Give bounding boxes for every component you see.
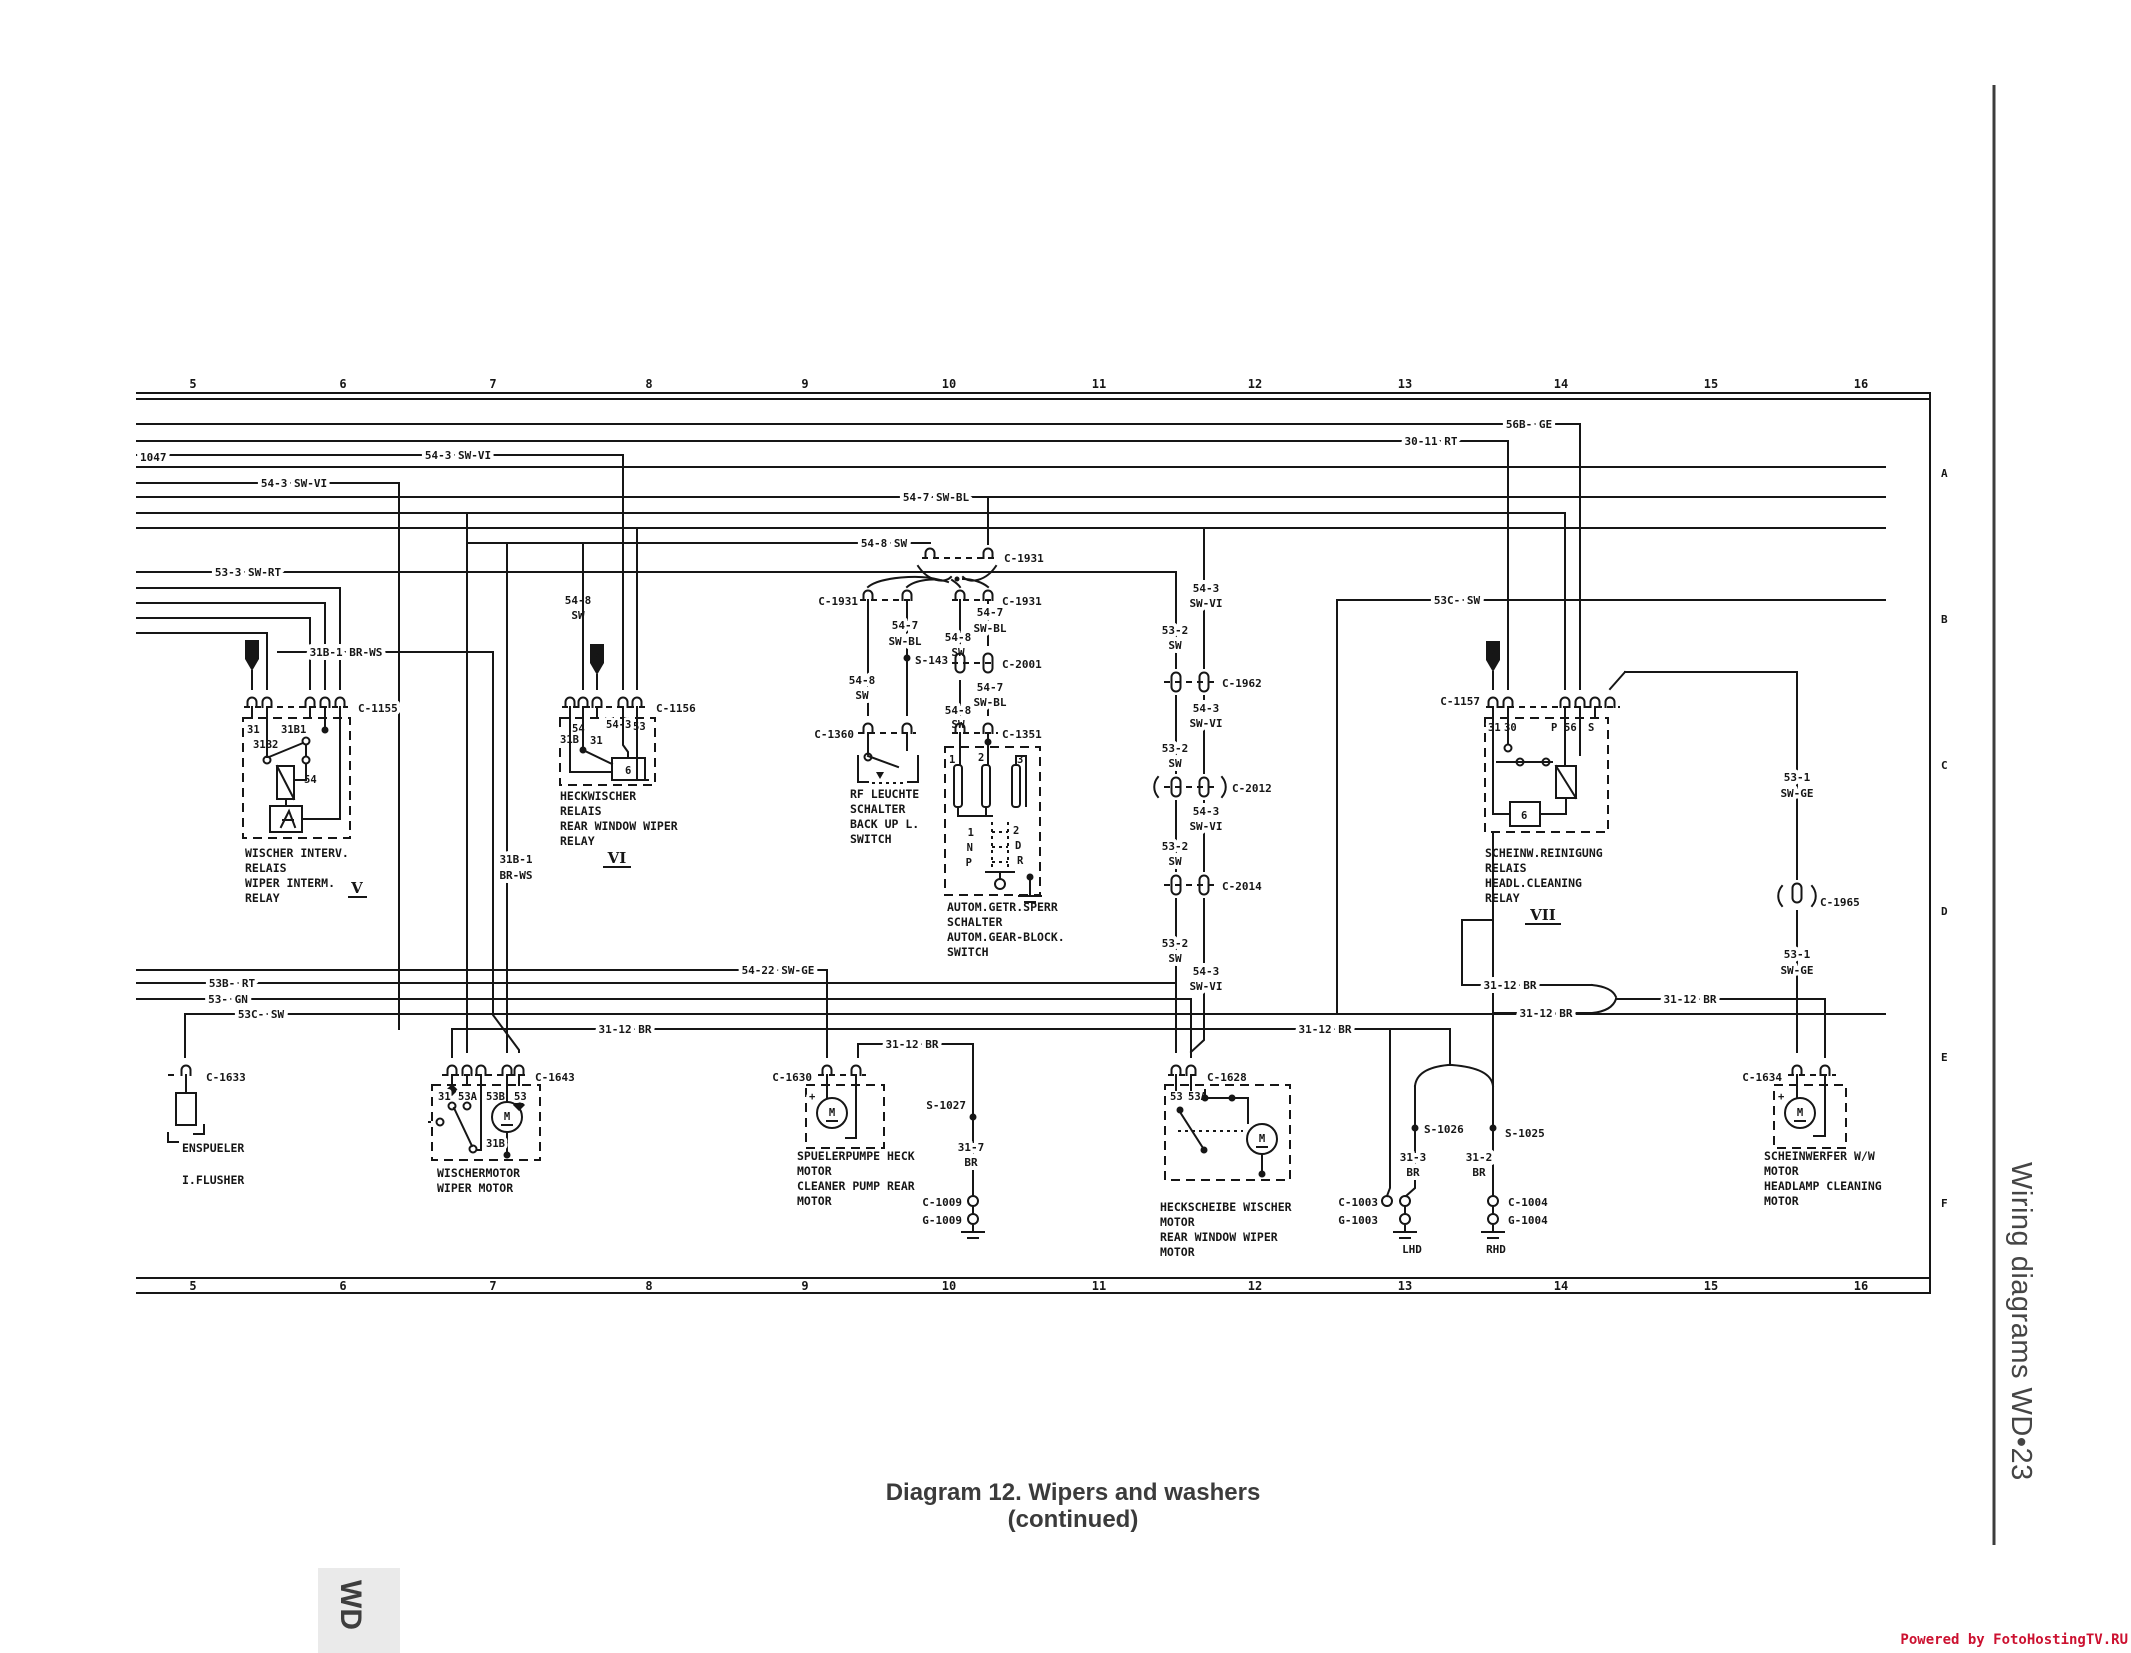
rear-window-wiper-motor: C-1628 53 53A HECKSCHEIBE WISCHER MOTOR … [1160, 1066, 1292, 1260]
grid-row-letter: B [1941, 613, 1948, 626]
grid-col-bottom: 8 [645, 1279, 652, 1293]
terminal-label: 2 [978, 752, 984, 764]
grid-col-bottom: 12 [1248, 1279, 1262, 1293]
wire-label: SW-VI [1189, 820, 1222, 833]
grid-col-top: 8 [645, 377, 652, 391]
connector-label: C-2001 [1002, 658, 1042, 671]
component-name: SWITCH [947, 945, 989, 959]
connector-label: C-1003 [1338, 1196, 1378, 1209]
grid-col-bottom: 9 [801, 1279, 808, 1293]
wire-label: 53C- SW [1434, 594, 1481, 607]
wire-label: BR [1472, 1166, 1486, 1179]
grid-col-top: 11 [1092, 377, 1106, 391]
connector-label: C-1009 [922, 1196, 962, 1209]
component-name: MOTOR [1764, 1164, 1799, 1178]
component-name: AUTOM.GEAR-BLOCK. [947, 930, 1065, 944]
connector-label: C-2012 [1232, 782, 1272, 795]
terminal-label: 53B [486, 1091, 505, 1103]
connector-label: G-1004 [1508, 1214, 1548, 1227]
wire-label: 53-1 [1784, 771, 1811, 784]
wire-label: SW-VI [1189, 717, 1222, 730]
wire-label: SW-BL [973, 696, 1006, 709]
wire-label: SW-GE [1780, 787, 1813, 800]
gear-position: D [1015, 840, 1021, 852]
terminal-label: P [1551, 722, 1557, 734]
component-name: WISCHERMOTOR [437, 1166, 520, 1180]
grid-col-bottom: 7 [489, 1279, 496, 1293]
wire-label: 56B- GE [1506, 418, 1552, 431]
wire-label: 54-7 [977, 681, 1004, 694]
wire-label: SW [855, 689, 869, 702]
wire-label: 54-3 [1193, 965, 1220, 978]
polarity-label: + [809, 1091, 815, 1103]
component-name: SCHALTER [947, 915, 1002, 929]
wiring-diagram-canvas: 2 M 5 6 7 8 9 10 11 12 13 14 15 16 5 6 7… [0, 0, 2131, 1653]
wire-label: 53-2 [1162, 742, 1189, 755]
grid-col-top: 14 [1554, 377, 1568, 391]
grid-col-top: 9 [801, 377, 808, 391]
wire-label: 31-12 BR [1484, 979, 1537, 992]
grid-col-bottom: 16 [1854, 1279, 1868, 1293]
wire-label: SW-BL [973, 622, 1006, 635]
connector-label: C-1965 [1820, 896, 1860, 909]
terminal-label: S [1588, 722, 1594, 734]
terminal-label: 31 [247, 724, 260, 736]
wire-label: 31-12 BR [599, 1023, 652, 1036]
wire-label: 53C- SW [238, 1008, 285, 1021]
wire-label: SW-BL [888, 635, 921, 648]
wire-label: 31-2 [1466, 1151, 1493, 1164]
grid-col-bottom: 14 [1554, 1279, 1568, 1293]
grid-col-bottom: 6 [339, 1279, 346, 1293]
splice-label: S-1027 [926, 1099, 966, 1112]
grid-col-top: 5 [189, 377, 196, 391]
component-name: HECKSCHEIBE WISCHER [1160, 1200, 1292, 1214]
component-name: WISCHER INTERV. [245, 846, 349, 860]
wire-label: 31-12 BR [886, 1038, 939, 1051]
connector-label: C-1931 [1002, 595, 1042, 608]
wire-label: 53-2 [1162, 624, 1189, 637]
connector-label: C-1633 [206, 1071, 246, 1084]
terminal-label: 53 [633, 721, 646, 733]
wire-label: BR [964, 1156, 978, 1169]
grid-row-letter: D [1941, 905, 1948, 918]
component-name: SWITCH [850, 832, 892, 846]
wire-label: 54-3 [1193, 702, 1220, 715]
connector-label: C-1931 [1004, 552, 1044, 565]
wire-label: 53-2 [1162, 840, 1189, 853]
component-name: MOTOR [797, 1194, 832, 1208]
wire-label: 31-12 BR [1520, 1007, 1573, 1020]
headlamp-feed-wire: C-1965 53-1 SW-GE 53-1 SW-GE [1778, 672, 1860, 1052]
connector-label: C-1643 [535, 1071, 575, 1084]
component-name: AUTOM.GETR.SPERR [947, 900, 1058, 914]
wire-label: 54-22 SW-GE [742, 964, 815, 977]
wire-label: SW-VI [1189, 980, 1222, 993]
diagram-caption: Diagram 12. Wipers and washers [886, 1479, 1261, 1506]
component-name: SCHALTER [850, 802, 905, 816]
diagram-caption-continued: (continued) [1008, 1506, 1139, 1533]
wire-label: 54-3 [1193, 805, 1220, 818]
gear-position: 1 [968, 827, 974, 839]
polarity-label: + [1778, 1091, 1784, 1103]
connector-label: C-1628 [1207, 1071, 1247, 1084]
grid-col-top: 10 [942, 377, 956, 391]
terminal-label: 53 [514, 1091, 527, 1103]
component-name: CLEANER PUMP REAR [797, 1179, 915, 1193]
relay-coil-label: 6 [1521, 810, 1527, 822]
grid-col-top: 12 [1248, 377, 1262, 391]
terminal-label: 31B2 [253, 739, 278, 751]
grid-col-top: 6 [339, 377, 346, 391]
component-name: RELAY [245, 891, 280, 905]
connector-label: C-1155 [358, 702, 398, 715]
headlamp-cleaning-motor: C-1634 + SCHEINWERFER W/W MOTOR HEADLAMP… [1742, 1066, 1882, 1209]
component-name: RELAIS [1485, 861, 1527, 875]
grid-col-top: 7 [489, 377, 496, 391]
terminal-label: 1 [949, 754, 955, 766]
component-name: RELAY [1485, 891, 1520, 905]
splice-label: S-1025 [1505, 1127, 1545, 1140]
wire-label: SW-VI [1189, 597, 1222, 610]
wire-label: BR-WS [499, 869, 532, 882]
component-name: SCHEINWERFER W/W [1764, 1149, 1875, 1163]
grid-col-bottom: 13 [1398, 1279, 1412, 1293]
gear-position: P [966, 857, 972, 869]
grid-col-top: 16 [1854, 377, 1868, 391]
wire-label: 53-1 [1784, 948, 1811, 961]
section-tab-label: WD [334, 1580, 367, 1630]
wire-label: 54-7 [977, 606, 1004, 619]
component-name: RELAY [560, 834, 595, 848]
terminal-label: 30 [1504, 722, 1517, 734]
wire-label: BR [1406, 1166, 1420, 1179]
connector-label: G-1003 [1338, 1214, 1378, 1227]
terminal-label: 31 [590, 735, 603, 747]
wire-label: 54-8 [849, 674, 876, 687]
wire-label: 54-3 [1193, 582, 1220, 595]
connector-label: C-1156 [656, 702, 696, 715]
connector-label: C-1360 [814, 728, 854, 741]
wire-label: SW [1168, 757, 1182, 770]
component-name: REAR WINDOW WIPER [560, 819, 678, 833]
component-name: BACK UP L. [850, 817, 919, 831]
grid-col-bottom: 10 [942, 1279, 956, 1293]
terminal-label: 53A [458, 1091, 478, 1103]
component-name: HECKWISCHER [560, 789, 636, 803]
wire-label: 53-2 [1162, 937, 1189, 950]
grid-row-letter: C [1941, 759, 1948, 772]
backup-and-gearblock-switches: C-1931 C-1931 C-1931 S-143 54-7 SW-BL 54… [814, 549, 1064, 960]
terminal-label: 31B1 [281, 724, 306, 736]
terminal-label: 31 [1488, 722, 1501, 734]
drive-side-label: LHD [1402, 1243, 1422, 1256]
component-name: MOTOR [1160, 1215, 1195, 1229]
connector-chain: C-1962 C-2012 C-2014 54-3 SW-VI 53-2 SW … [1154, 572, 1272, 1052]
rear-washer-pump: C-1630 + SPUELERPUMPE HECK MOTOR CLEANER… [772, 1066, 915, 1209]
wire-label: 31-12 BR [1664, 993, 1717, 1006]
component-name: MOTOR [1764, 1194, 1799, 1208]
wire-label: 31-7 [958, 1141, 985, 1154]
wire-label: 54-8 [945, 704, 972, 717]
wire-label: SW [1168, 639, 1182, 652]
wire-label: SW [951, 646, 965, 659]
splice-label: S-143 [915, 654, 948, 667]
terminal-label: 31 [438, 1091, 451, 1103]
grid-row-letter: E [1941, 1051, 1948, 1064]
component-name: MOTOR [1160, 1245, 1195, 1259]
splice-label: S-1026 [1424, 1123, 1464, 1136]
component-name: REAR WINDOW WIPER [1160, 1230, 1278, 1244]
wire-label: 54-8 [945, 631, 972, 644]
component-name: MOTOR [797, 1164, 832, 1178]
wire-label: 31-12 BR [1299, 1023, 1352, 1036]
component-name: HEADLAMP CLEANING [1764, 1179, 1882, 1193]
wire-label: 53-3 SW-RT [215, 566, 282, 579]
connector-label: C-1351 [1002, 728, 1042, 741]
wire-label: SW [1168, 855, 1182, 868]
grid-col-bottom: 5 [189, 1279, 196, 1293]
connector-label: C-1634 [1742, 1071, 1782, 1084]
component-name: WIPER INTERM. [245, 876, 335, 890]
wire-label: SW-GE [1780, 964, 1813, 977]
connector-label: C-1157 [1440, 695, 1480, 708]
gear-position: 2 [1013, 825, 1019, 837]
wire-label: 1047 [140, 451, 167, 464]
wire-label: 53B- RT [209, 977, 256, 990]
wire-label: 31-3 [1400, 1151, 1427, 1164]
diagram-frame: 5 6 7 8 9 10 11 12 13 14 15 16 5 6 7 8 9… [137, 377, 1948, 1293]
drive-side-label: RHD [1486, 1243, 1506, 1256]
gear-position: N [967, 842, 973, 854]
component-name: SPUELERPUMPE HECK [797, 1149, 915, 1163]
connector-label: C-1931 [818, 595, 858, 608]
connector-label: C-1962 [1222, 677, 1262, 690]
connector-label: C-1630 [772, 1071, 812, 1084]
page-furniture: Diagram 12. Wipers and washers (continue… [318, 85, 2128, 1653]
component-name: HEADL.CLEANING [1485, 876, 1582, 890]
component-name: SCHEINW.REINIGUNG [1485, 846, 1603, 860]
connector-label: G-1009 [922, 1214, 962, 1227]
wire-label: 54-3 SW-VI [425, 449, 491, 462]
wire-label: 54-3 SW-VI [261, 477, 327, 490]
wire-label: 54-7 [892, 619, 919, 632]
wire-label: 53- GN [208, 993, 248, 1006]
grid-col-top: 15 [1704, 377, 1718, 391]
page-side-title: Wiring diagrams WD•23 [2005, 1162, 2037, 1481]
grid-row-letter: F [1941, 1197, 1948, 1210]
grid-col-top: 13 [1398, 377, 1412, 391]
wire-label: 31B-1 [499, 853, 532, 866]
grid-col-bottom: 11 [1092, 1279, 1106, 1293]
intensive-flusher: C-1633 ENSPUELER I.FLUSHER [168, 1066, 246, 1188]
relay-rear-window-wiper: 54-8 SW C-1156 31B 31 54 54-3 53 6 HECKW… [499, 543, 696, 882]
watermark-footer: Powered by FotoHostingTV.RU [1900, 1632, 2128, 1648]
component-name: I.FLUSHER [182, 1173, 244, 1187]
wire-label: 31B-1 BR-WS [310, 646, 383, 659]
scanned-wiring-diagram-page: 2 M 5 6 7 8 9 10 11 12 13 14 15 16 5 6 7… [0, 0, 2131, 1653]
gear-position: R [1017, 855, 1024, 867]
component-name: RELAIS [245, 861, 287, 875]
wire-label: 54-7 SW-BL [903, 491, 970, 504]
roman-numeral: V [350, 879, 363, 897]
grid-row-letter: A [1941, 467, 1948, 480]
wire-label: SW [1168, 952, 1182, 965]
wiper-motor: C-1643 31 53A 53B 53 31B WISCHERMOTOR WI… [428, 1066, 575, 1196]
terminal-label: 53 [1170, 1091, 1183, 1103]
roman-numeral: VI [607, 849, 627, 867]
component-name: RELAIS [560, 804, 602, 818]
component-name: RF LEUCHTE [850, 787, 919, 801]
component-name: WIPER MOTOR [437, 1181, 513, 1195]
connector-label: C-2014 [1222, 880, 1262, 893]
relay-coil-label: 6 [625, 765, 631, 777]
component-name: ENSPUELER [182, 1141, 244, 1155]
connector-label: C-1004 [1508, 1196, 1548, 1209]
terminal-label: 31B [486, 1138, 505, 1150]
roman-numeral: VII [1529, 906, 1556, 924]
wire-label: 30-11 RT [1405, 435, 1458, 448]
relay-headlamp-cleaning: C-1157 31 30 P 56 S 6 SCHEINW.REINIGUNG … [1440, 641, 1620, 924]
terminal-label: 54-3 [606, 719, 631, 731]
grid-col-bottom: 15 [1704, 1279, 1718, 1293]
wire-label: 54-8 [565, 594, 592, 607]
wire-label: 54-8 SW [861, 537, 908, 550]
